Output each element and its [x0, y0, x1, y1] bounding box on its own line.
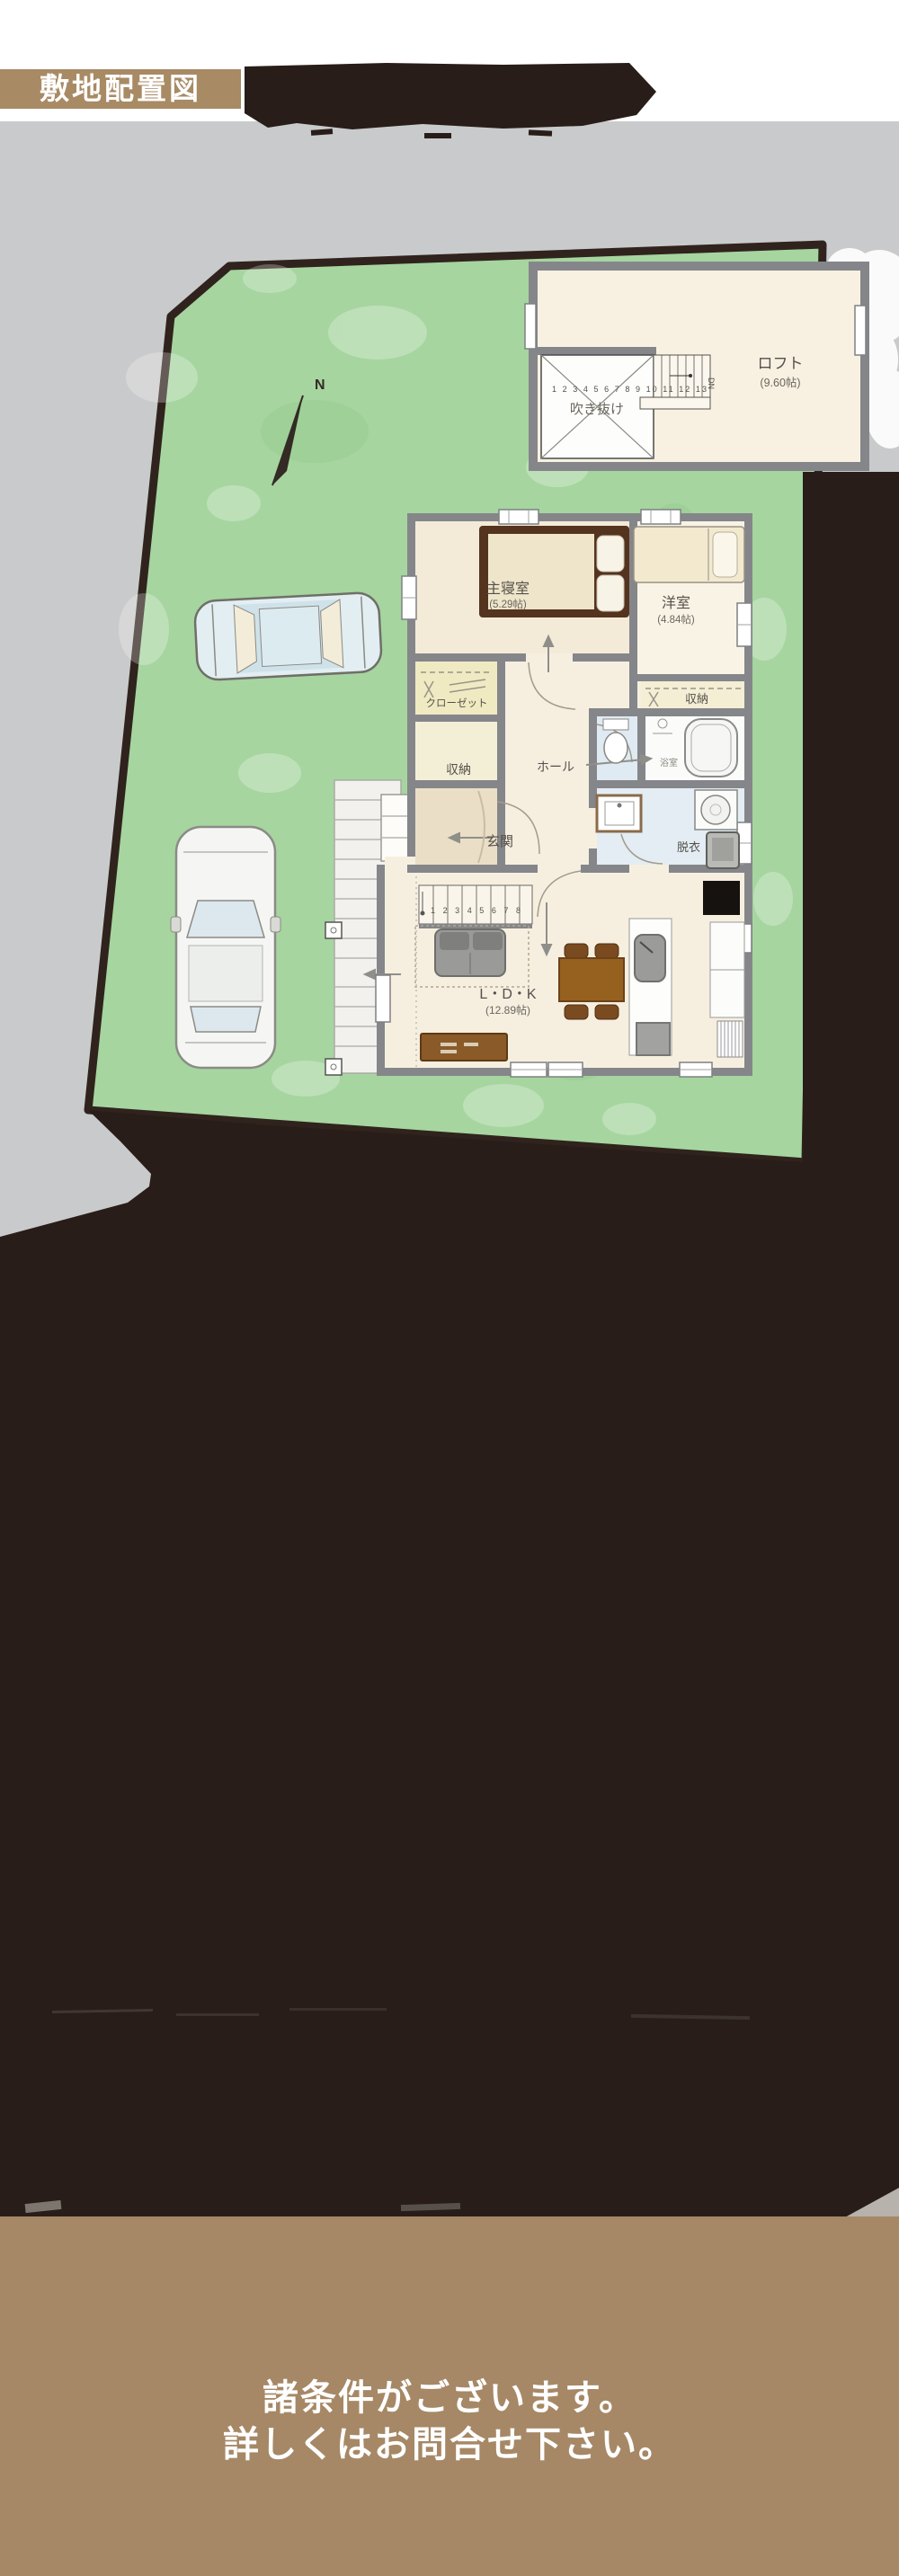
label-bath: 浴室	[660, 757, 678, 768]
redacted-black-section	[0, 1258, 899, 2216]
label-stairs-upper: 1 2 3 4 5 6 7 8 9 10 11 12 13	[552, 385, 707, 394]
label-hall: ホール	[537, 759, 574, 774]
label-master-size: (5.29帖)	[489, 598, 527, 610]
label-storage2: 収納	[685, 692, 708, 706]
toilet-icon	[603, 719, 628, 763]
stove-icon	[636, 1023, 670, 1055]
label-loft-size: (9.60帖)	[760, 376, 800, 389]
car-mirror	[171, 917, 181, 932]
car-suv-icon	[194, 592, 382, 681]
faint-remnant-line	[176, 2013, 259, 2016]
faint-remnant-line	[289, 2008, 387, 2011]
coffee-table-icon	[421, 1034, 507, 1061]
gate-post	[325, 922, 342, 938]
kitchen-island	[629, 919, 672, 1055]
label-closet: クローゼット	[426, 697, 488, 709]
entrance-porch	[381, 795, 410, 861]
footer-band: 諸条件がございます。 詳しくはお問合せ下さい。	[0, 2216, 899, 2576]
site-plan-figure: 敷地配置図	[0, 0, 899, 1258]
gate-post	[325, 1059, 342, 1075]
label-western-size: (4.84帖)	[657, 613, 695, 626]
laundry-chair-icon	[707, 832, 739, 868]
vanity-icon	[597, 795, 641, 831]
label-western-room: 洋室	[662, 595, 690, 611]
single-bed	[634, 527, 744, 582]
label-ldk: L・D・K	[479, 987, 536, 1002]
site-plan-page: 敷地配置図	[0, 0, 899, 2576]
loft-plan: ロフト (9.60帖) 吹き抜け 1 2 3 4 5 6 7 8 9 10 11…	[525, 262, 869, 471]
north-label: N	[315, 378, 325, 393]
sink-icon	[635, 935, 665, 982]
redacted-speck	[424, 133, 451, 138]
label-dressing: 脱衣	[677, 840, 700, 854]
label-void: 吹き抜け	[570, 402, 624, 417]
notice-line-2: 詳しくはお問合せ下さい。	[0, 2421, 899, 2468]
label-ldk-size: (12.89帖)	[485, 1003, 530, 1017]
notice-text: 諸条件がございます。 詳しくはお問合せ下さい。	[0, 2216, 899, 2468]
refrigerator-icon	[703, 881, 740, 915]
washing-machine-icon	[695, 790, 737, 830]
title-badge-label: 敷地配置図	[40, 72, 201, 105]
label-storage: 収納	[446, 762, 471, 777]
slatted-panel	[717, 1021, 743, 1057]
label-loft: ロフト	[758, 355, 804, 372]
redacted-headline-shape	[245, 63, 656, 129]
loft-window	[855, 306, 866, 355]
car-mirror	[271, 917, 280, 932]
notice-line-1: 諸条件がございます。	[0, 2375, 899, 2421]
label-entrance: 玄関	[486, 834, 513, 849]
label-master-bedroom: 主寝室	[486, 580, 530, 597]
label-stairs-lower: 1 2 3 4 5 6 7 8	[431, 906, 521, 915]
loft-window	[525, 304, 536, 349]
sofa-icon	[435, 929, 505, 976]
back-counter	[710, 922, 744, 1017]
house-floorplan: 主寝室 (5.29帖) 洋室 (4.84帖) クローゼット 収納 収納 ホール …	[365, 510, 752, 1077]
label-down: DN	[707, 378, 716, 389]
car-van-icon	[171, 827, 280, 1068]
